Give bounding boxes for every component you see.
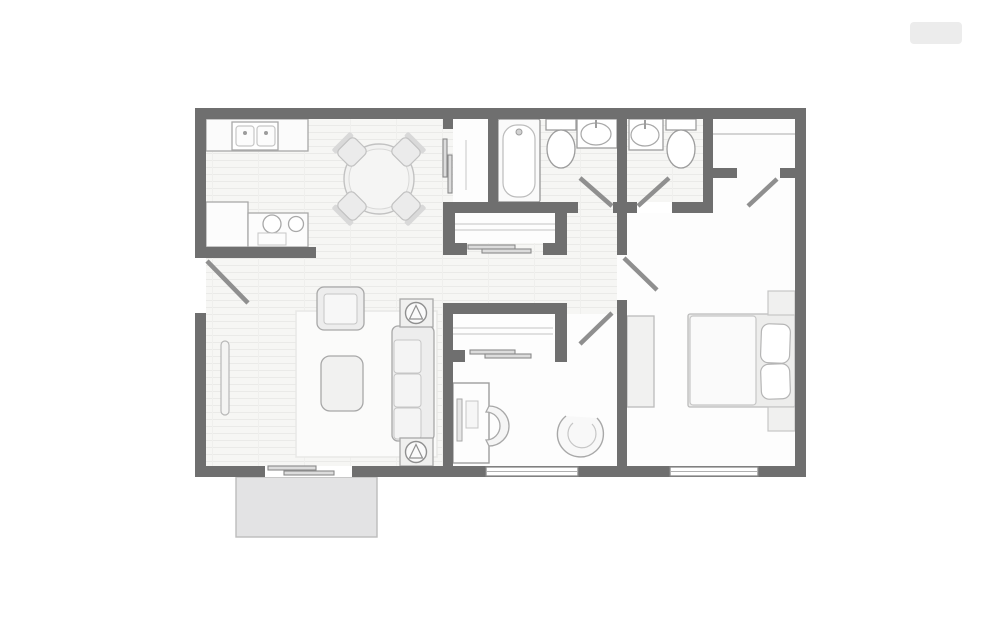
sink-drain-right xyxy=(264,131,268,135)
desk-monitor xyxy=(457,399,462,441)
sofa-cushion xyxy=(394,408,421,439)
floor-pantry-closet xyxy=(453,119,488,202)
kitchen-sink-bowl-left xyxy=(236,126,254,146)
sink-drain-left xyxy=(243,131,247,135)
wall-hallcloset-bottom-a xyxy=(443,243,467,255)
wall-kitchen-peninsula xyxy=(195,247,316,258)
bathtub-faucet xyxy=(516,129,522,135)
pantry-bifold-panel xyxy=(448,155,452,193)
hallcloset-sliding-panel xyxy=(468,245,515,249)
desk-item xyxy=(466,401,478,428)
bathtub-basin xyxy=(503,125,535,197)
toilet-bowl xyxy=(667,130,695,168)
kitchen-fridge xyxy=(206,202,248,247)
sofa-cushion xyxy=(394,374,421,407)
entry-door-opening xyxy=(195,258,206,313)
stove-burner-large xyxy=(263,215,281,233)
accent-chair xyxy=(557,416,603,457)
officecloset-sliding-panel xyxy=(485,354,531,358)
floor-bedroom-nook xyxy=(713,178,795,213)
toilet-tank xyxy=(546,119,576,130)
dresser xyxy=(627,316,654,407)
nightstand xyxy=(768,407,795,431)
floor-plan-svg xyxy=(0,0,998,626)
armchair-cushion xyxy=(324,294,357,324)
patio-sliding-panel xyxy=(268,466,316,470)
wall-top xyxy=(195,108,806,119)
wall-left-lower xyxy=(195,313,206,477)
wall-closet-bottom-a xyxy=(703,168,737,178)
toilet-bowl xyxy=(547,130,575,168)
wall-closet-bottom-b xyxy=(780,168,795,178)
nightstand xyxy=(768,291,795,315)
floor-hall-closet xyxy=(455,213,555,243)
officecloset-sliding-panel xyxy=(470,350,515,354)
wall-pantry-stub xyxy=(443,119,453,129)
wall-officecloset-top xyxy=(443,303,567,314)
console-table xyxy=(221,341,229,415)
stove-burner-small xyxy=(289,217,304,232)
toilet-tank xyxy=(666,119,696,130)
patio-sliding-panel xyxy=(284,471,334,475)
wall-left-upper xyxy=(195,108,206,258)
wall-officecloset-right xyxy=(555,314,567,362)
wall-center-lower xyxy=(617,300,627,466)
patio xyxy=(236,477,377,537)
wall-bath2-right xyxy=(703,119,713,213)
kitchen-sink-bowl-right xyxy=(257,126,275,146)
wall-center-upper xyxy=(617,119,627,255)
coffee-table xyxy=(321,356,363,411)
pantry-bifold-panel xyxy=(443,139,447,177)
wall-right xyxy=(795,108,806,477)
bed-pillow xyxy=(760,324,790,364)
hallcloset-sliding-panel xyxy=(482,249,531,253)
wall-office-left xyxy=(443,314,453,466)
wall-pantry-right xyxy=(488,119,498,205)
wall-hallcloset-bottom-b xyxy=(543,243,567,255)
background-artifact xyxy=(910,22,962,44)
sofa-cushion xyxy=(394,340,421,373)
bed-mattress xyxy=(690,316,756,405)
floor-plan-image xyxy=(0,0,998,626)
bed-pillow xyxy=(760,363,790,399)
